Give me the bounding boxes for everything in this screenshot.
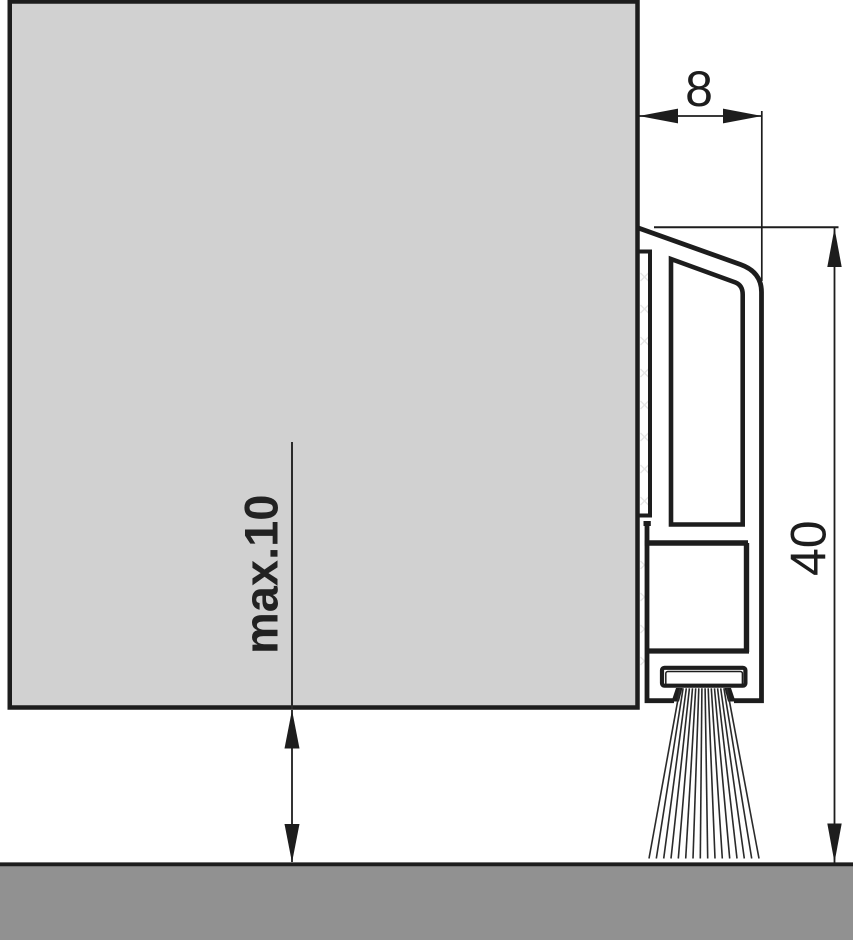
svg-text:40: 40	[781, 520, 837, 576]
svg-text:8: 8	[685, 61, 713, 117]
svg-text:max.10: max.10	[235, 495, 288, 654]
